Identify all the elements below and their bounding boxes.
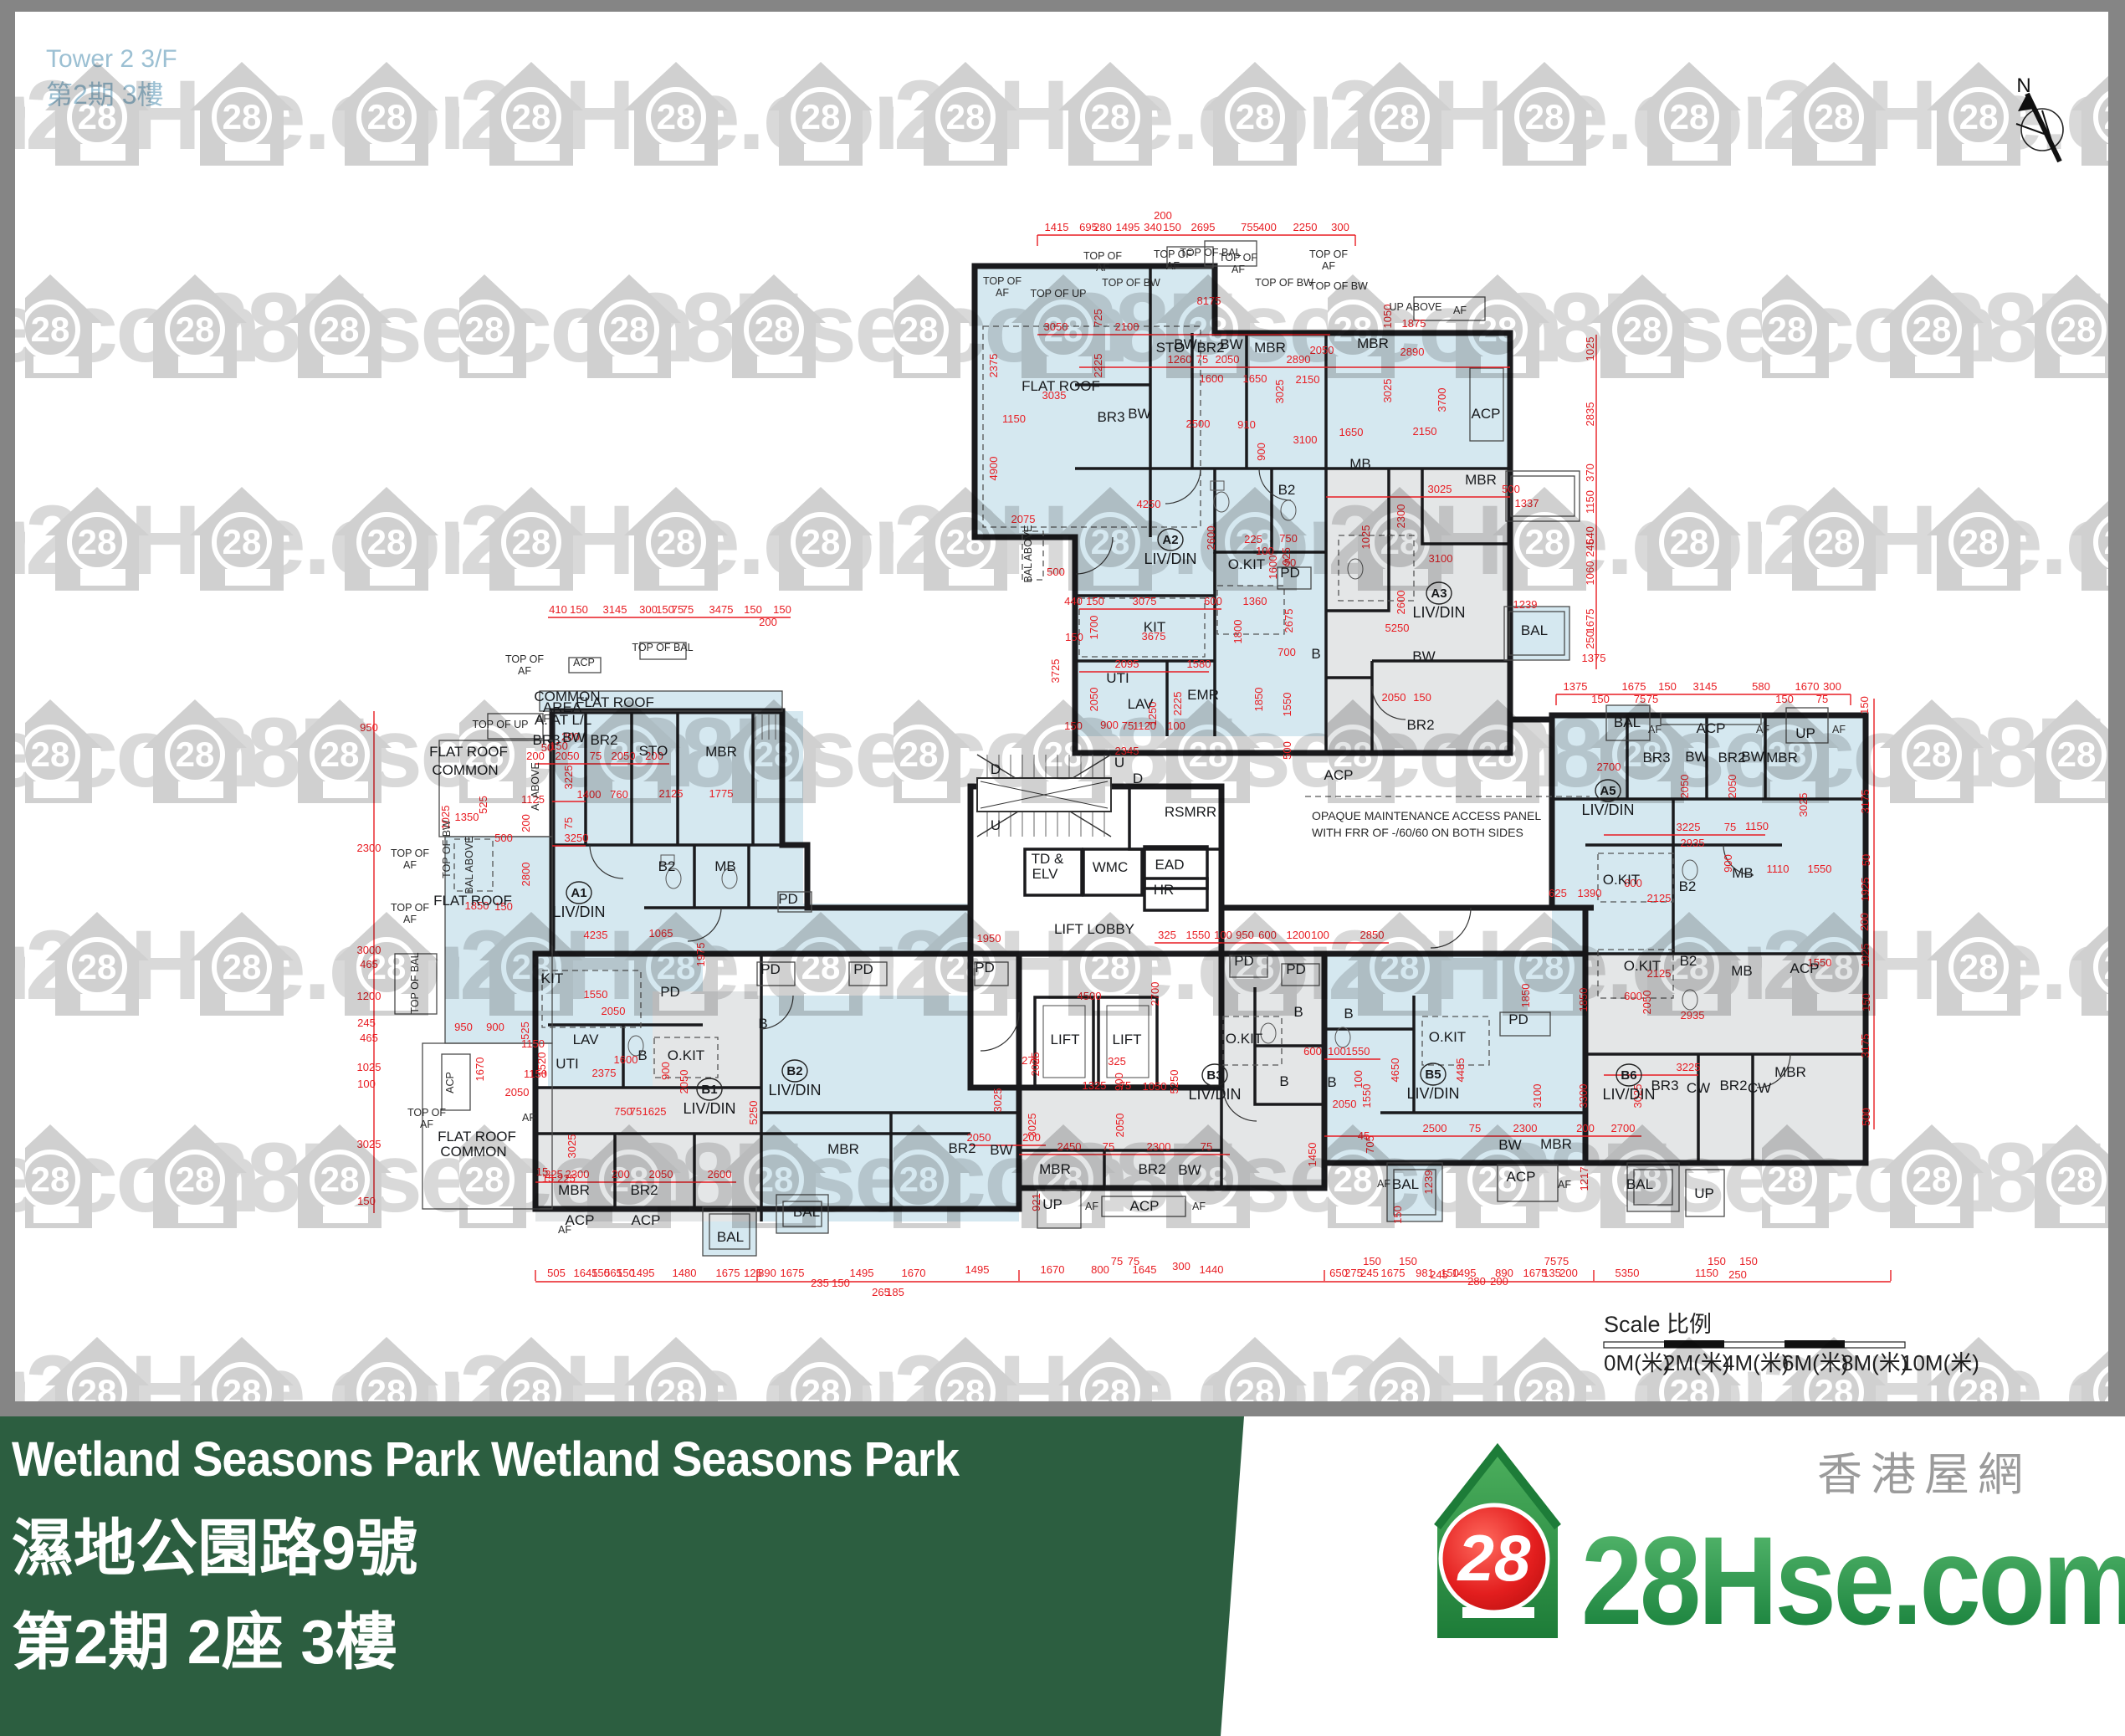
banner-phase-cn: 第2期 2座 3樓 <box>12 1592 397 1682</box>
logo-28hse: 28 28Hse.com 香港屋網 <box>1414 1425 2125 1709</box>
banner-name-en: Wetland Seasons Park Wetland Seasons Par… <box>12 1431 959 1488</box>
watermark-overlay <box>15 12 2108 1401</box>
bottom-band: Wetland Seasons Park Wetland Seasons Par… <box>0 1416 2125 1736</box>
svg-text:28: 28 <box>1457 1521 1531 1595</box>
logo-brand-text: 28Hse.com <box>1581 1510 2125 1651</box>
banner-address-cn: 濕地公園路9號 <box>12 1498 417 1588</box>
floorplan-page: 28 28Hse.com 28Hse.com 28Hse.com Tower 2… <box>15 12 2108 1401</box>
title-banner: Wetland Seasons Park Wetland Seasons Par… <box>0 1416 1339 1736</box>
logo-cn-text: 香港屋網 <box>1817 1450 2031 1500</box>
floorplan-drawing: 28 28Hse.com 28Hse.com 28Hse.com Tower 2… <box>15 12 2108 1401</box>
screenshot-root: { "header":{"title_line1":"Tower 2 3/F",… <box>0 0 2125 1736</box>
logo-house-icon: 28 <box>1437 1450 1558 1638</box>
